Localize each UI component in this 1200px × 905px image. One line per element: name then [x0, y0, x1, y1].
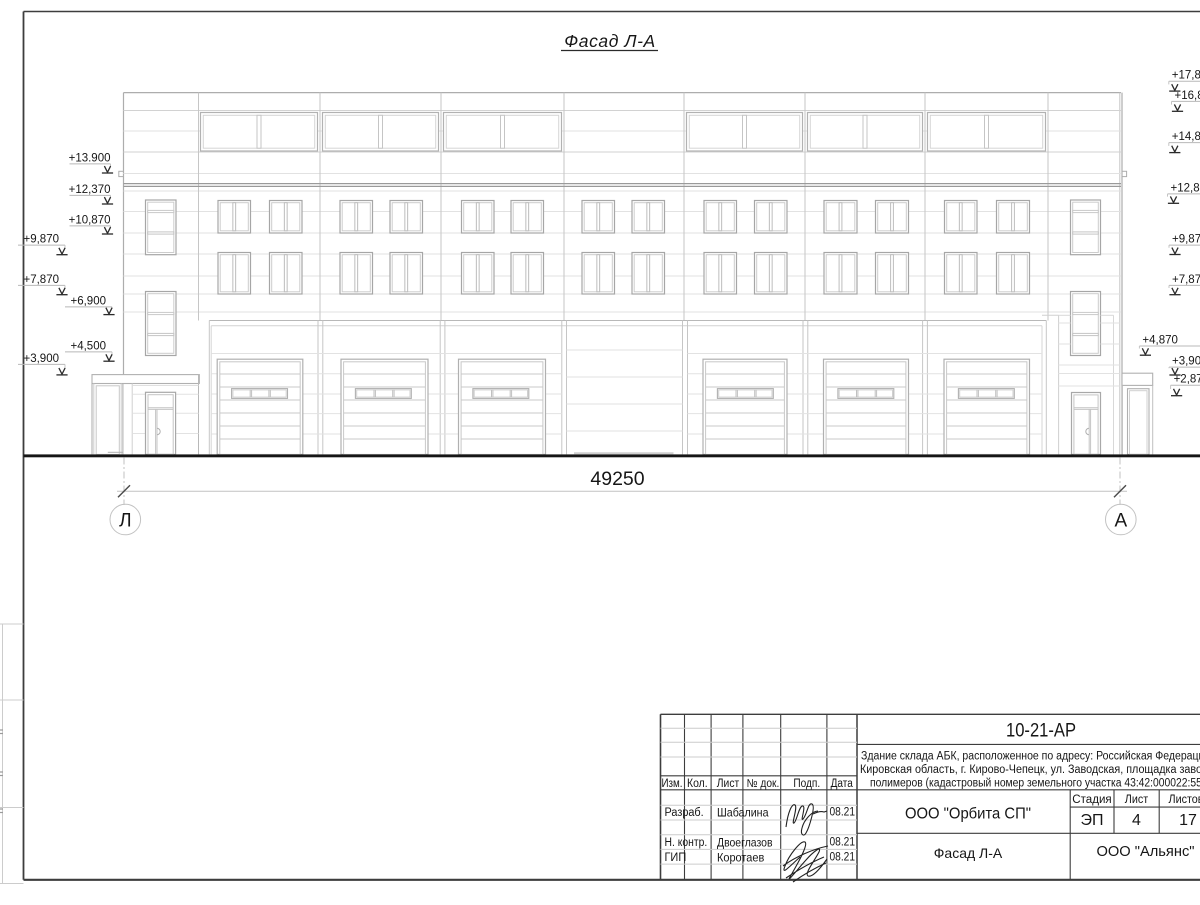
svg-text:Лист: Лист	[1125, 794, 1149, 806]
svg-text:10-21-АР: 10-21-АР	[1006, 721, 1076, 742]
svg-text:Изм.: Изм.	[662, 778, 683, 790]
svg-text:Подп.: Подп.	[793, 778, 820, 790]
svg-text:+9,870: +9,870	[24, 234, 60, 246]
svg-text:Лист: Лист	[717, 778, 740, 790]
svg-text:+9,870: +9,870	[1172, 234, 1200, 246]
svg-text:4: 4	[1132, 812, 1141, 829]
svg-text:Шабалина: Шабалина	[717, 806, 769, 820]
svg-text:17: 17	[1179, 812, 1197, 829]
svg-text:Стадия: Стадия	[1072, 794, 1111, 806]
svg-text:А: А	[1114, 510, 1127, 531]
svg-text:+7,870: +7,870	[24, 274, 60, 286]
svg-text:+3,900: +3,900	[1172, 356, 1200, 368]
svg-text:ГИП: ГИП	[665, 852, 687, 864]
svg-text:ЭП: ЭП	[1081, 812, 1104, 829]
svg-text:ООО "Альянс": ООО "Альянс"	[1097, 843, 1195, 860]
svg-text:Фасад Л-А: Фасад Л-А	[564, 31, 656, 51]
svg-text:+7,870: +7,870	[1172, 274, 1200, 286]
svg-text:Л: Л	[119, 510, 131, 531]
svg-text:+6,900: +6,900	[71, 295, 107, 307]
svg-text:+13.900: +13.900	[69, 152, 111, 164]
svg-text:№ док.: № док.	[747, 778, 780, 790]
svg-text:+12,370: +12,370	[69, 184, 111, 196]
svg-text:Здание склада АБК, расположенн: Здание склада АБК, расположенное по адре…	[861, 751, 1200, 763]
svg-text:+4,870: +4,870	[1142, 334, 1178, 346]
svg-text:+12,870: +12,870	[1171, 182, 1200, 194]
svg-text:Кировская область, г. Кирово-Ч: Кировская область, г. Кирово-Чепецк, ул.…	[860, 764, 1200, 776]
svg-text:+4,500: +4,500	[71, 340, 107, 352]
svg-text:+17,870: +17,870	[1172, 70, 1200, 82]
svg-text:Фасад Л-А: Фасад Л-А	[934, 845, 1003, 861]
svg-text:Дата: Дата	[831, 778, 854, 790]
svg-text:49250: 49250	[590, 468, 644, 490]
svg-text:+14,870: +14,870	[1172, 131, 1200, 143]
svg-text:+2,870: +2,870	[1174, 374, 1200, 386]
svg-text:Кол.: Кол.	[687, 778, 708, 790]
svg-text:+16,870: +16,870	[1175, 90, 1200, 102]
svg-text:ООО "Орбита СП": ООО "Орбита СП"	[905, 806, 1031, 823]
svg-text:Н. контр.: Н. контр.	[665, 837, 708, 849]
svg-text:+10,870: +10,870	[69, 214, 111, 226]
svg-text:Листов: Листов	[1169, 794, 1200, 806]
svg-text:08.21: 08.21	[830, 851, 856, 863]
svg-text:Разраб.: Разраб.	[665, 807, 704, 819]
svg-text:Двоеглазов: Двоеглазов	[717, 835, 773, 849]
svg-text:Коротаев: Коротаев	[717, 850, 764, 864]
svg-text:08.21: 08.21	[830, 836, 856, 848]
svg-text:08.21: 08.21	[830, 807, 856, 819]
svg-text:полимеров (кадастровый номер з: полимеров (кадастровый номер земельного …	[870, 777, 1200, 789]
svg-text:+3,900: +3,900	[24, 353, 60, 365]
